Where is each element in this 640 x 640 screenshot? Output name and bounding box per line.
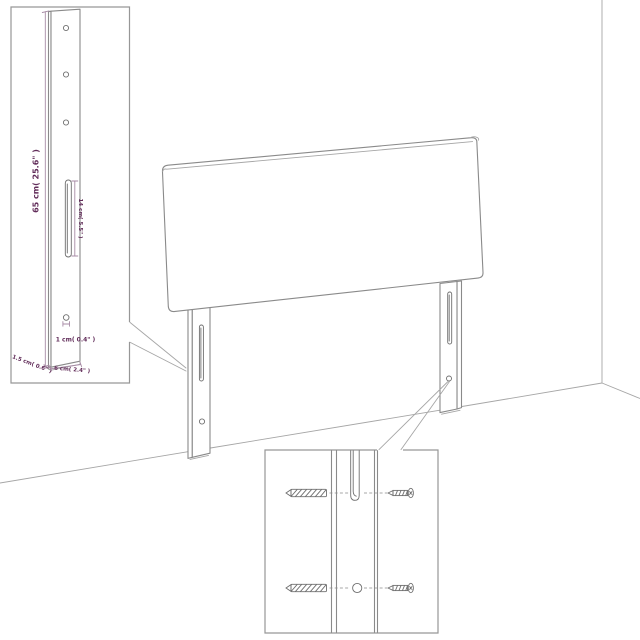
right-leg-side-face <box>457 281 462 409</box>
left-leg-hole <box>199 419 204 424</box>
right-leg-slot <box>448 292 452 344</box>
hardware-inset-hole <box>353 583 362 592</box>
dimension-slot-label: 14 cm( 5.5" ) <box>77 198 83 239</box>
hardware-inset <box>265 450 438 633</box>
headboard-diagram-canvas: 65 cm( 25.6" ) 14 cm( 5.5" ) 1 cm( 0.4" … <box>0 0 640 640</box>
leg-inset-drawing <box>49 9 81 370</box>
callout-lines-hardware-inset <box>379 382 450 450</box>
inset-leg-hole-lower <box>63 120 68 125</box>
diagram-stage: 65 cm( 25.6" ) 14 cm( 5.5" ) 1 cm( 0.4" … <box>0 0 640 640</box>
right-leg <box>440 281 462 414</box>
inset-leg-small-hole <box>63 315 69 321</box>
floor-line-right <box>602 383 640 399</box>
inset-leg-slot <box>65 180 71 257</box>
left-leg <box>188 305 210 460</box>
callout-lines-left-inset <box>130 322 187 371</box>
hardware-inset-background <box>265 450 438 633</box>
dimension-height-label: 65 cm( 25.6" ) <box>32 149 41 213</box>
left-leg-side-face <box>188 308 192 458</box>
inset-leg-hole-middle <box>63 72 68 77</box>
headboard-panel-outline <box>162 138 483 312</box>
right-leg-hole <box>447 376 452 381</box>
left-leg-slot <box>199 325 203 381</box>
inset-leg-hole-top <box>63 25 68 30</box>
leg-dimension-inset: 65 cm( 25.6" ) 14 cm( 5.5" ) 1 cm( 0.4" … <box>11 7 130 383</box>
headboard-panel <box>162 137 483 312</box>
dimension-hole-label: 1 cm( 0.4" ) <box>56 337 96 344</box>
